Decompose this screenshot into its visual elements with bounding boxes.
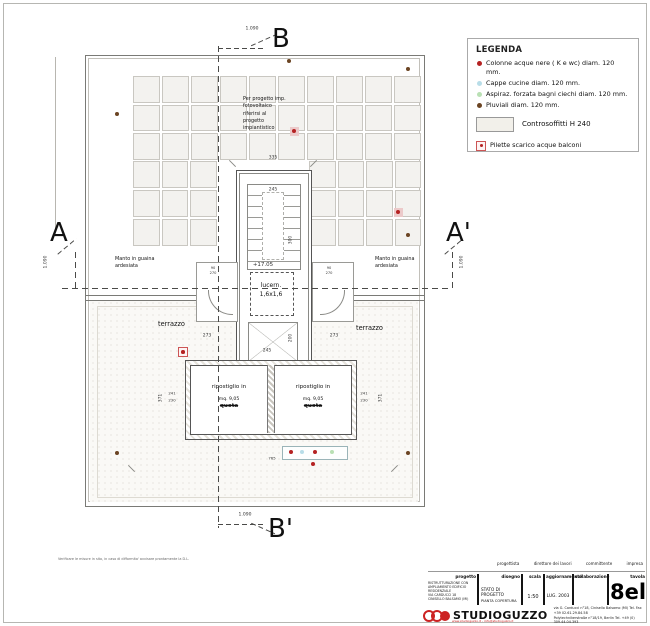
studio-logo-icon xyxy=(423,610,450,622)
role-label: committente xyxy=(586,561,612,566)
solar-panel-cell xyxy=(366,190,393,217)
solar-panel-cell xyxy=(190,161,217,188)
solar-panel-cell xyxy=(309,161,336,188)
solar-panel-cell xyxy=(338,161,365,188)
dot-blue xyxy=(477,81,482,86)
col-disegno: disegno STATO DI PROGETTO PIANTA COPERTU… xyxy=(481,574,520,605)
legend-ceiling-row: Controsoffitti H 240 xyxy=(476,117,630,132)
room-right-area: mq. 9,05 xyxy=(274,397,352,402)
dimension-label: 300 xyxy=(289,236,294,245)
solar-panel-cell xyxy=(278,133,305,160)
solar-panel-cell xyxy=(336,105,363,132)
legend-item-label: Colonne acque nere ( K e wc) diam. 120 m… xyxy=(486,59,630,78)
legend-item: Colonne acque nere ( K e wc) diam. 120 m… xyxy=(476,59,630,78)
agg-value: LUG. 2003 xyxy=(546,594,570,599)
titleblock-topline xyxy=(428,571,645,572)
solar-panel-cell xyxy=(190,219,217,246)
solar-panel-cell xyxy=(162,190,189,217)
solar-panel-cell xyxy=(133,105,160,132)
legend-box: LEGENDA Colonne acque nere ( K e wc) dia… xyxy=(467,38,639,152)
progetto-text: RISTRUTTURAZIONE CONAMPLIAMENTO EDIFICIO… xyxy=(428,581,476,601)
ceiling-swatch-icon xyxy=(476,117,514,132)
room-right-name: ripostiglio in xyxy=(274,384,352,390)
dimension-label: 1.090 xyxy=(246,27,259,32)
solar-panel-grid-right xyxy=(309,161,421,246)
terrazzo-label-right: terrazzo xyxy=(356,324,383,332)
role-label: impresa xyxy=(626,561,642,566)
room-left-name: ripostiglio in xyxy=(190,384,268,390)
solar-panel-cell xyxy=(133,190,160,217)
solar-panel-cell xyxy=(307,76,334,103)
legend-item: Cappe cucine diam. 120 mm. xyxy=(476,79,630,88)
role-label: progettista xyxy=(497,561,519,566)
col-collaborazione: collaborazione xyxy=(575,574,605,605)
solar-panel-cell xyxy=(191,76,218,103)
section-line-bb xyxy=(218,46,219,528)
col-tavola: tavola 8el xyxy=(610,574,645,605)
solar-panel-cell xyxy=(365,105,392,132)
dimension-label: 270 xyxy=(210,271,217,275)
studio-url: www.studioguzzo.it - info@studioguzzo.it xyxy=(452,619,514,623)
solar-panel-grid-left xyxy=(133,161,217,246)
section-leader-a-left xyxy=(75,252,76,288)
dimension-label: 230 xyxy=(360,398,367,403)
section-letter-b1: B' xyxy=(268,514,293,544)
legend-item: Aspiraz. forzata bagni ciechi diam. 120 … xyxy=(476,90,630,99)
titleblock-bar xyxy=(572,574,574,605)
solar-panel-cell xyxy=(307,105,334,132)
dot-brown xyxy=(477,103,482,108)
solar-panel-cell xyxy=(309,219,336,246)
solar-panel-cell xyxy=(162,105,189,132)
sewage-column-marker xyxy=(394,208,403,217)
solar-panel-cell xyxy=(338,190,365,217)
titleblock-roles: progettistadirettore dei lavoricommitten… xyxy=(497,561,643,566)
stair-rail xyxy=(262,192,284,260)
titleblock-bar xyxy=(521,574,523,605)
section-letter-a1: A' xyxy=(446,218,471,248)
section-leader-b-top xyxy=(218,48,266,49)
sewage-column-marker xyxy=(290,127,299,136)
solar-panel-cell xyxy=(162,219,189,246)
col-scala: scala 1:50 xyxy=(525,574,541,605)
solar-panel-cell xyxy=(133,161,160,188)
scala-value: 1:50 xyxy=(525,594,541,600)
legend-title: LEGENDA xyxy=(476,45,630,55)
dimension-label: 371 xyxy=(379,394,384,403)
dimension-line-left xyxy=(55,57,56,229)
room-left-label: ripostiglio in mq. 9,05 quota xyxy=(190,384,268,409)
solar-panel-cell xyxy=(307,133,334,160)
room-right-label: ripostiglio in mq. 9,05 quota xyxy=(274,384,352,409)
solar-panel-cell xyxy=(162,76,189,103)
solar-panel-cell xyxy=(162,161,189,188)
solar-panel-cell xyxy=(191,105,218,132)
studio-address: via G. Carducci n°18, Cinisello Balsamo … xyxy=(554,606,645,625)
legend-items: Colonne acque nere ( K e wc) diam. 120 m… xyxy=(476,59,630,110)
dimension-label: 241 xyxy=(360,391,367,396)
section-letter-b: B xyxy=(272,24,290,54)
solar-panel-cell xyxy=(162,133,189,160)
solar-panel-cell xyxy=(366,161,393,188)
col-scala-header: scala xyxy=(525,574,541,579)
col-tavola-header: tavola xyxy=(610,574,645,579)
progetto-line: CINISELLO BALSAMO (MI) xyxy=(428,597,476,601)
solar-panel-cell xyxy=(220,133,247,160)
tavola-number: 8el xyxy=(610,580,645,604)
solar-panel-cell xyxy=(133,76,160,103)
solar-panel-cell xyxy=(394,105,421,132)
dimension-label: 90 xyxy=(211,266,216,270)
legend-item-label: Pluviali diam. 120 mm. xyxy=(486,101,559,110)
legend-pilette-label: Pilette scarico acque balconi xyxy=(490,141,581,150)
dimension-label: 245 xyxy=(263,349,272,354)
dimension-label: 270 xyxy=(326,271,333,275)
dimension-label: 1.090 xyxy=(460,256,465,269)
dimension-label: 273 xyxy=(330,334,339,339)
manto-label-right: Manto in guaina ardesiata xyxy=(375,256,414,271)
titleblock-bar xyxy=(477,574,479,605)
col-aggiornamento: aggiornamento LUG. 2003 xyxy=(546,574,570,605)
dimension-label: +17.05 xyxy=(253,262,273,268)
titleblock-bar xyxy=(543,574,545,605)
dimension-label: 200 xyxy=(289,334,294,343)
dimension-label: 1.090 xyxy=(239,513,252,518)
legend-item: Pluviali diam. 120 mm. xyxy=(476,101,630,110)
dimension-label: 371 xyxy=(159,394,164,403)
dimension-label: 1.090 xyxy=(44,256,49,269)
solar-panel-cell xyxy=(133,133,160,160)
solar-panel-cell xyxy=(309,190,336,217)
balcony-drain-marker xyxy=(178,347,188,357)
room-left-area: mq. 9,05 xyxy=(190,397,268,402)
skylight-label: lucern. 1,6x1,6 xyxy=(250,281,292,300)
dimension-label: 90 xyxy=(327,266,332,270)
col-progetto-header: progetto xyxy=(428,574,476,579)
dot-green xyxy=(477,92,482,97)
solar-panel-cell xyxy=(366,219,393,246)
legend-item-label: Aspiraz. forzata bagni ciechi diam. 120 … xyxy=(486,90,627,99)
section-letter-a: A xyxy=(50,218,68,248)
room-left-quota: quota xyxy=(190,403,268,409)
titleblock-bar xyxy=(607,574,609,605)
solar-panel-cell xyxy=(365,76,392,103)
solar-panel-cell xyxy=(133,219,160,246)
solar-panel-cell xyxy=(190,190,217,217)
solar-panel-cell xyxy=(336,133,363,160)
solar-panel-cell xyxy=(338,219,365,246)
dot-red xyxy=(477,61,482,66)
legend-ceiling-label: Controsoffitti H 240 xyxy=(522,119,591,129)
room-right-quota: quota xyxy=(274,403,352,409)
section-line-aa xyxy=(62,288,452,289)
solar-panel-cell xyxy=(336,76,363,103)
col-progetto: progetto RISTRUTTURAZIONE CONAMPLIAMENTO… xyxy=(428,574,476,605)
dimension-label: 765 xyxy=(268,456,275,461)
legend-item-label: Cappe cucine diam. 120 mm. xyxy=(486,79,580,88)
dimension-label: 273 xyxy=(203,334,212,339)
dimension-label: 230 xyxy=(168,398,175,403)
col-collab-header: collaborazione xyxy=(575,574,605,579)
col-disegno-header: disegno xyxy=(481,574,520,579)
role-label: direttore dei lavori xyxy=(534,561,572,566)
pilette-icon xyxy=(476,141,486,151)
dimension-label: 245 xyxy=(269,188,278,193)
terrazzo-label-left: terrazzo xyxy=(158,320,185,328)
sheet-footnote: Verificare le misure in sito, in caso di… xyxy=(58,557,189,561)
legend-pilette-row: Pilette scarico acque balconi xyxy=(476,141,630,151)
disegno-line1: STATO DI PROGETTO xyxy=(481,587,520,597)
col-agg-header: aggiornamento xyxy=(546,574,570,579)
solar-panel-cell xyxy=(394,76,421,103)
solar-panel-cell xyxy=(191,133,218,160)
drawing-sheet: lucern. 1,6x1,6 ripostiglio in mq. 9,05 … xyxy=(0,0,650,626)
dimension-label: 335 xyxy=(269,156,278,161)
dimension-label: 241 xyxy=(168,391,175,396)
section-leader-a-right xyxy=(452,252,453,288)
manto-label-left: Manto in guaina ardesiata xyxy=(115,256,154,271)
disegno-line2: PIANTA COPERTURA xyxy=(481,599,520,603)
solar-panel-cell xyxy=(394,133,421,160)
solar-panel-cell xyxy=(395,161,422,188)
solar-panel-cell xyxy=(365,133,392,160)
